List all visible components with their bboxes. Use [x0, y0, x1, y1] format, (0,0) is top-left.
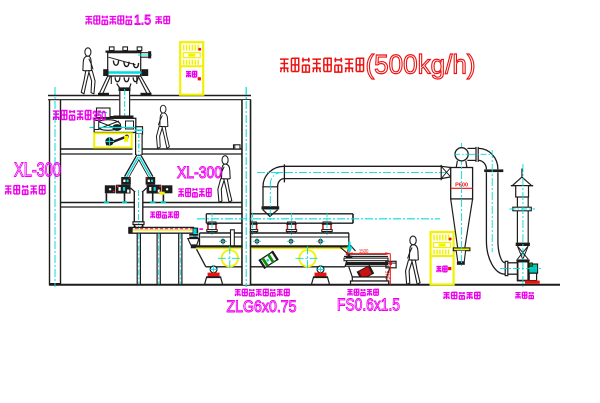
svg-text:1500: 1500 [359, 249, 369, 255]
svg-text:ZLG6x0.75: ZLG6x0.75 [227, 297, 297, 316]
svg-text:350: 350 [93, 108, 107, 124]
svg-text:XL-300: XL-300 [14, 160, 61, 182]
svg-text:FS0.6x1.5: FS0.6x1.5 [337, 295, 400, 315]
svg-text:(500kg/h): (500kg/h) [366, 50, 476, 80]
svg-text:1.5: 1.5 [134, 12, 151, 28]
svg-text:545: 545 [386, 270, 392, 279]
svg-text:XL-300: XL-300 [177, 164, 222, 182]
